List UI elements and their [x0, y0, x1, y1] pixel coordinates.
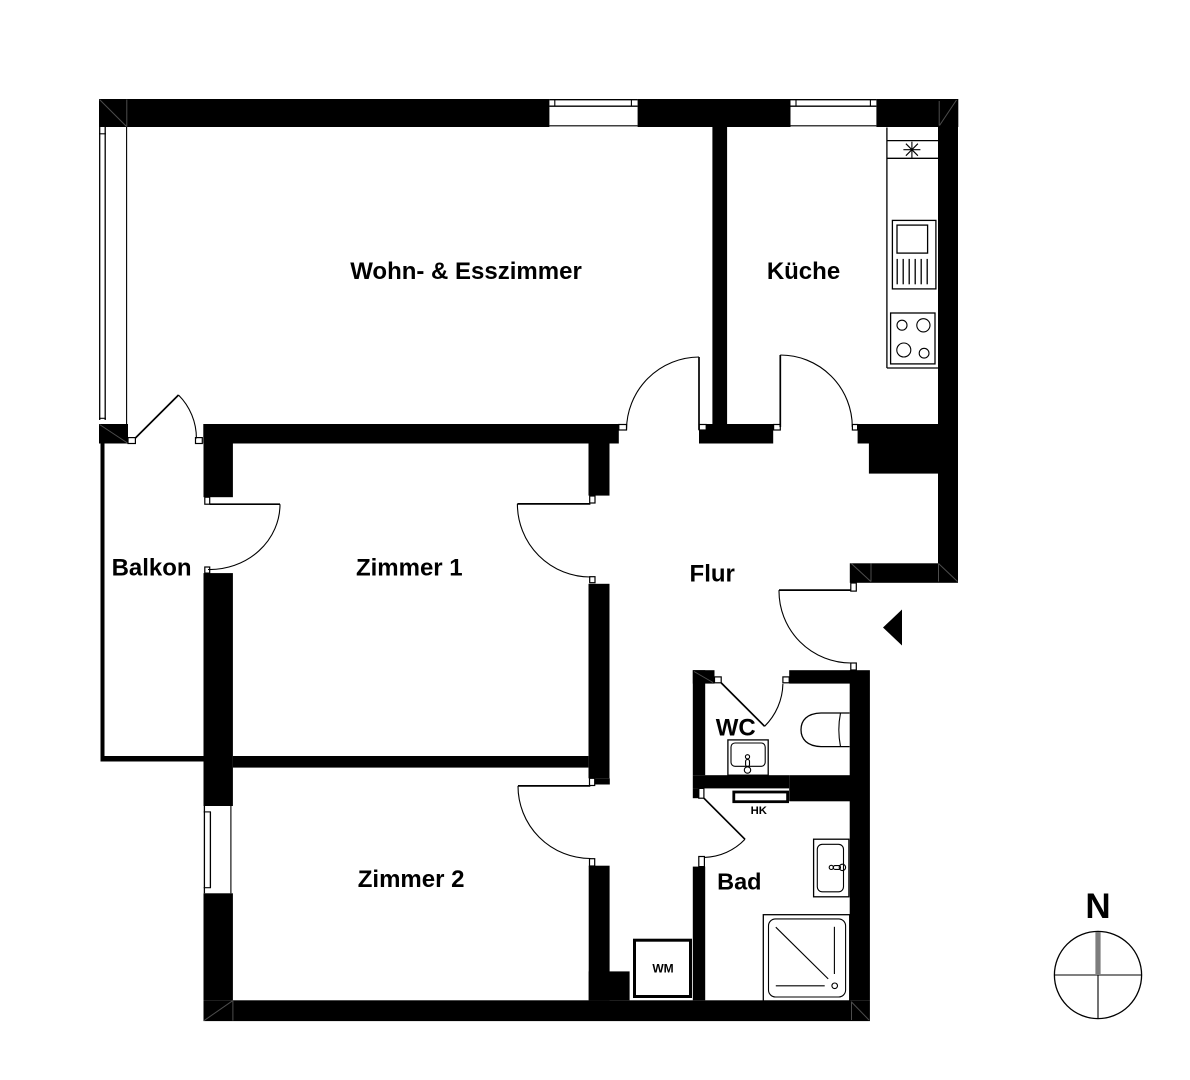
svg-text:N: N [1085, 887, 1110, 926]
svg-text:Balkon: Balkon [112, 554, 192, 581]
svg-text:Flur: Flur [690, 561, 735, 588]
svg-text:WM: WM [652, 961, 673, 975]
svg-text:Wohn- & Esszimmer: Wohn- & Esszimmer [350, 258, 582, 285]
svg-text:Zimmer 1: Zimmer 1 [356, 554, 463, 581]
svg-text:Küche: Küche [767, 258, 840, 285]
svg-text:HK: HK [751, 805, 768, 817]
svg-text:Bad: Bad [717, 869, 761, 895]
svg-text:Zimmer 2: Zimmer 2 [358, 866, 465, 893]
svg-text:WC: WC [716, 715, 756, 742]
